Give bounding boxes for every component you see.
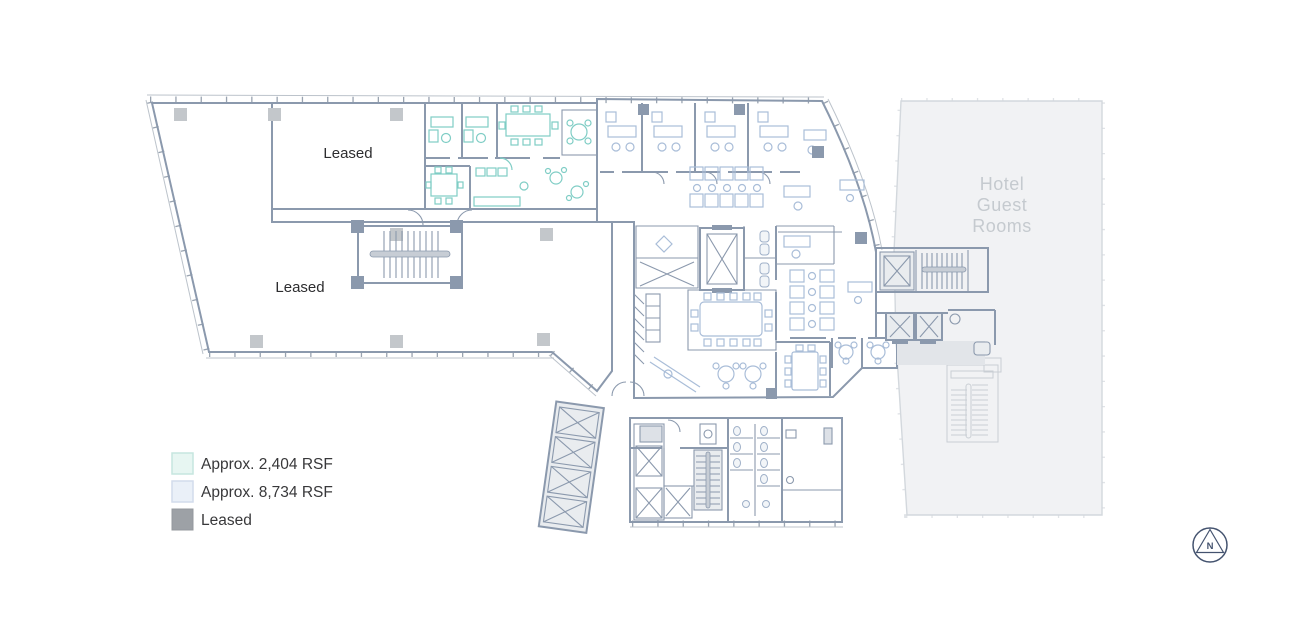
legend-label-leased: Leased bbox=[201, 512, 252, 529]
elevator-landing bbox=[897, 341, 985, 365]
legend-swatch-mint bbox=[172, 453, 193, 474]
hotel-label-line2: Guest bbox=[977, 195, 1028, 215]
suite-2404-furniture bbox=[426, 106, 591, 206]
legend-swatch-blue bbox=[172, 481, 193, 502]
floor-plan: Hotel Guest Rooms bbox=[0, 0, 1290, 620]
legend-label-8734: Approx. 8,734 RSF bbox=[201, 484, 333, 501]
legend-item-leased: Leased bbox=[172, 509, 252, 530]
north-compass-icon: N bbox=[1193, 528, 1227, 562]
legend-item-suite-8734: Approx. 8,734 RSF bbox=[172, 481, 333, 502]
leased-area-main bbox=[152, 103, 612, 391]
reception-furniture bbox=[650, 357, 766, 392]
conference-room-furniture bbox=[691, 293, 772, 346]
legend-label-2404: Approx. 2,404 RSF bbox=[201, 456, 333, 473]
bottom-core bbox=[539, 401, 842, 532]
leased-upper-label: Leased bbox=[323, 145, 372, 162]
hotel-outline bbox=[894, 101, 1102, 515]
leased-stairwell bbox=[351, 220, 463, 289]
leased-lower-label: Leased bbox=[275, 279, 324, 296]
leased-areas: Leased Leased bbox=[152, 103, 612, 391]
hotel-label-line3: Rooms bbox=[972, 216, 1032, 236]
legend: Approx. 2,404 RSF Approx. 8,734 RSF Leas… bbox=[172, 453, 333, 530]
legend-swatch-leased bbox=[172, 509, 193, 530]
hotel-area: Hotel Guest Rooms bbox=[894, 101, 1102, 515]
suite-2404-area bbox=[425, 103, 597, 209]
suite-8734-area bbox=[597, 99, 897, 399]
legend-item-suite-2404: Approx. 2,404 RSF bbox=[172, 453, 333, 474]
hotel-label-line1: Hotel bbox=[980, 174, 1025, 194]
angled-elevator-bank bbox=[539, 401, 604, 532]
compass-north-label: N bbox=[1207, 541, 1214, 552]
